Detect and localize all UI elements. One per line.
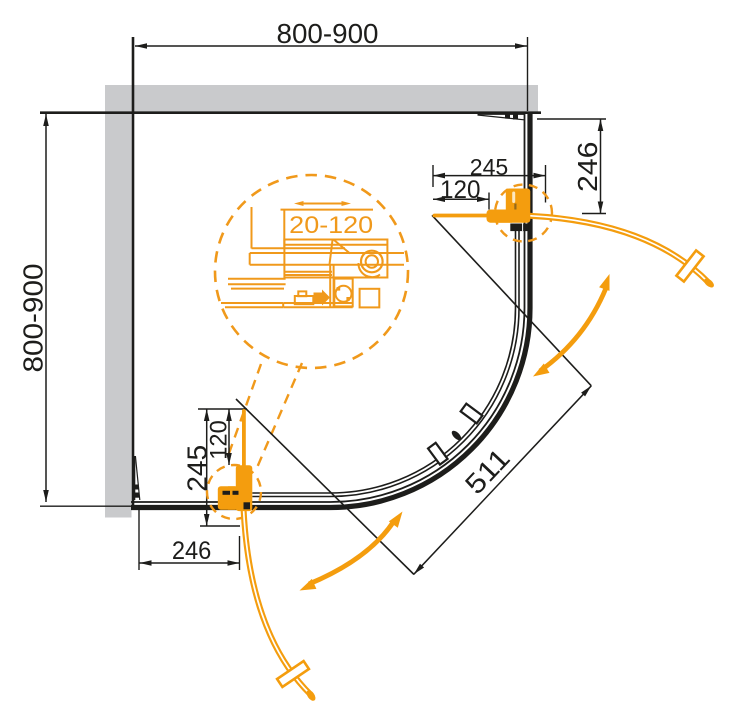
svg-text:20-120: 20-120 — [289, 212, 373, 239]
svg-text:120: 120 — [440, 176, 481, 204]
svg-text:246: 246 — [172, 537, 212, 565]
svg-text:120: 120 — [205, 420, 232, 460]
svg-text:800-900: 800-900 — [18, 264, 49, 373]
svg-text:246: 246 — [572, 142, 603, 193]
svg-text:800-900: 800-900 — [277, 18, 379, 49]
